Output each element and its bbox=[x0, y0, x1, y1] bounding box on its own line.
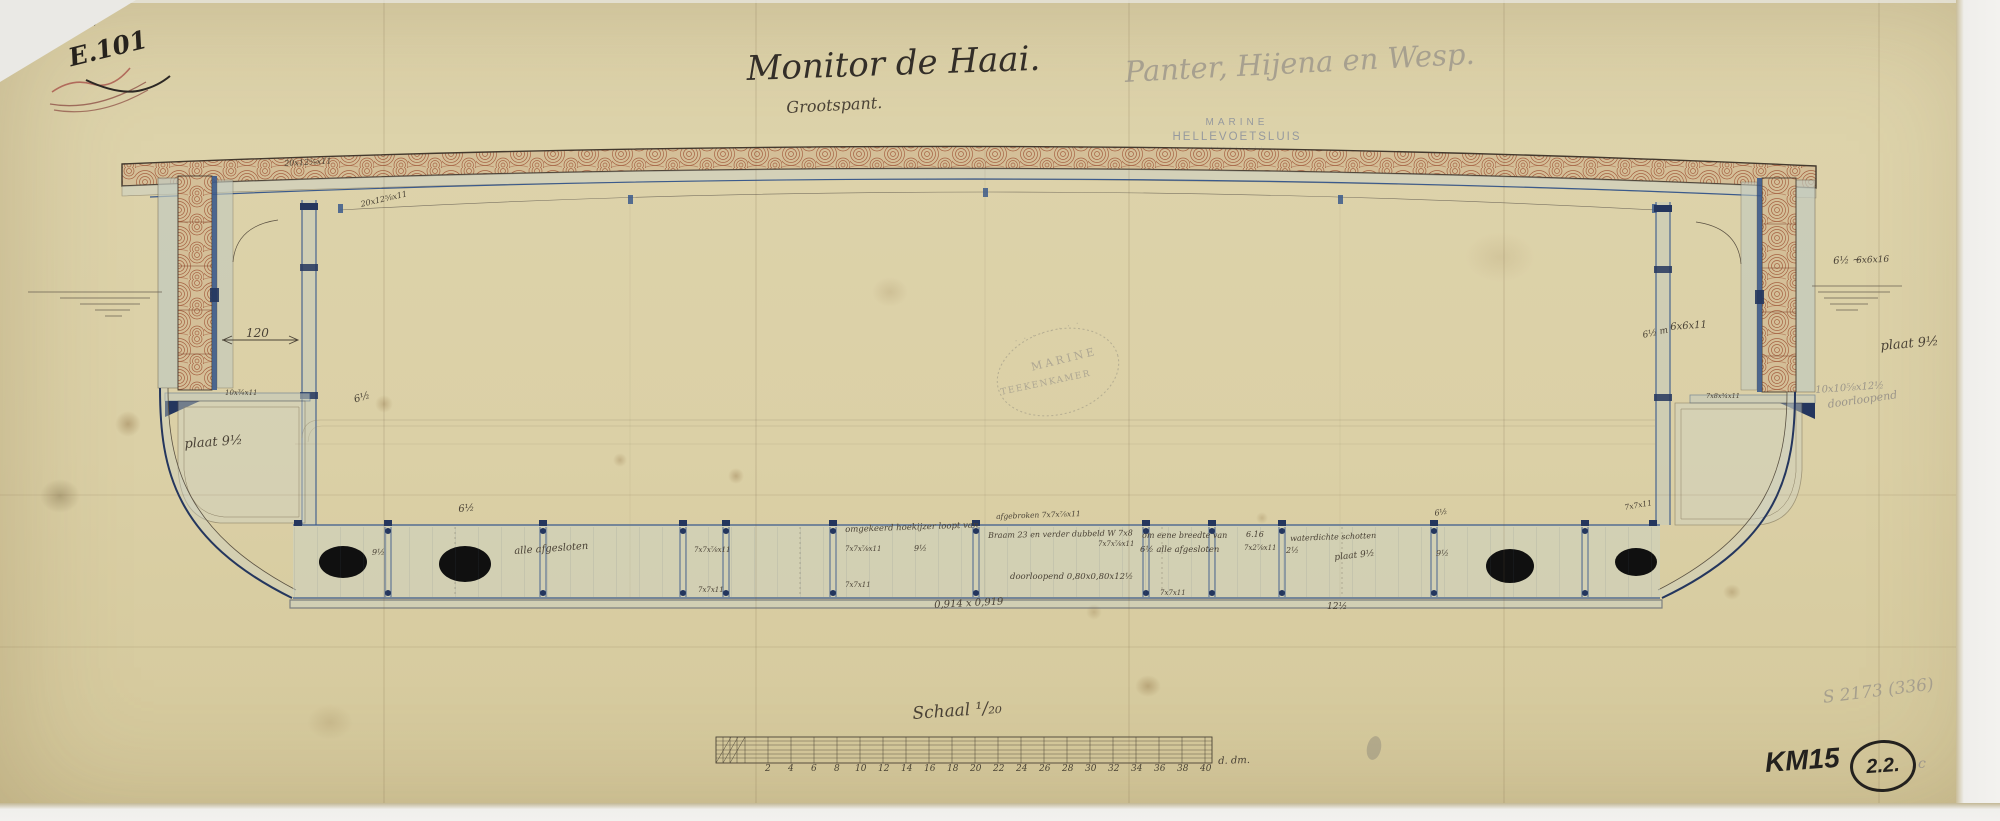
frac-2half: 2½ bbox=[1286, 547, 1299, 555]
dimension-120: 120 bbox=[246, 327, 269, 339]
scale-number: 24 bbox=[1016, 765, 1027, 774]
dim-c: 7x7x⅞x11 bbox=[845, 546, 881, 553]
collection-mark-km15: KM15 bbox=[1764, 744, 1840, 777]
fold-crease bbox=[1503, 0, 1505, 821]
scale-number: 26 bbox=[1039, 765, 1050, 774]
note-alle-afgesloten-b: 6½ alle afgesloten bbox=[1140, 546, 1219, 555]
measure-12half: 12½ bbox=[1327, 603, 1347, 612]
scale-number: 30 bbox=[1085, 765, 1096, 774]
dim-b: 7x7x11 bbox=[698, 587, 724, 594]
fold-crease bbox=[755, 0, 757, 821]
scale-number: 38 bbox=[1177, 765, 1188, 774]
plate-label-left: plaat 9½ bbox=[184, 434, 243, 451]
ship-plan-scan: N° 387 E.101 Monitor de Haai. Grootspant… bbox=[0, 0, 2000, 821]
scale-number: 18 bbox=[947, 765, 958, 774]
scale-number: 2 bbox=[765, 765, 771, 774]
band-6half: 6½ bbox=[458, 504, 475, 515]
circle-suffix: c bbox=[1918, 757, 1926, 771]
fold-crease bbox=[383, 0, 385, 821]
dim-a: 7x7x⅞x11 bbox=[694, 547, 730, 554]
circled-mark-text: 2.2. bbox=[1866, 753, 1901, 778]
band-9half-c: 9½ bbox=[1436, 550, 1449, 558]
scan-right-edge bbox=[1956, 0, 2000, 821]
dim-d: 7x7x11 bbox=[845, 582, 871, 589]
scale-number: 32 bbox=[1108, 765, 1119, 774]
scan-top-edge bbox=[120, 0, 2000, 3]
dim-g: 7x2⅞x11 bbox=[1244, 545, 1277, 552]
scale-number: 10 bbox=[855, 765, 866, 774]
scale-number: 40 bbox=[1200, 765, 1211, 774]
scale-number: 16 bbox=[924, 765, 935, 774]
fold-crease bbox=[0, 646, 2000, 648]
drawing-title: Monitor de Haai. bbox=[746, 42, 1041, 86]
shelf-left-dimension: 10x¾x11 bbox=[225, 390, 258, 397]
scale-number: 4 bbox=[788, 765, 794, 774]
right-6x6x16: 6x6x16 bbox=[1856, 256, 1889, 266]
marine-stamp-line3: · · · · · · · · · bbox=[1134, 144, 1340, 153]
scale-number: 6 bbox=[811, 765, 817, 774]
mark-616: 6.16 bbox=[1246, 531, 1264, 539]
dim-f: 7x7x11 bbox=[1160, 590, 1186, 597]
scale-number: 20 bbox=[970, 765, 981, 774]
band-9half-b: 9½ bbox=[914, 545, 927, 553]
scan-bottom-edge bbox=[0, 803, 2000, 821]
shelf-right-dimension: 7x8x¾x11 bbox=[1706, 393, 1740, 400]
dim-e: 7x7x⅞x11 bbox=[1098, 541, 1134, 548]
marine-stamp: MARINE HELLEVOETSLUIS · · · · · · · · · bbox=[1134, 117, 1340, 153]
scale-number: 28 bbox=[1062, 765, 1073, 774]
scale-number: 22 bbox=[993, 765, 1004, 774]
note-breedte: om eene breedte van bbox=[1142, 532, 1227, 540]
note-doorloopend-mid: doorloopend 0,80x0,80x12½ bbox=[1010, 573, 1133, 582]
marine-stamp-line2: HELLEVOETSLUIS bbox=[1134, 130, 1340, 144]
scale-number: 36 bbox=[1154, 765, 1165, 774]
scale-number: 12 bbox=[878, 765, 889, 774]
band-9half-a: 9½ bbox=[372, 549, 385, 557]
scale-unit-suffix: d. dm. bbox=[1218, 756, 1250, 767]
scale-number: 14 bbox=[901, 765, 912, 774]
marine-stamp-line1: MARINE bbox=[1134, 117, 1340, 130]
fold-crease bbox=[1128, 0, 1130, 821]
scale-number: 8 bbox=[834, 765, 840, 774]
fold-crease bbox=[0, 494, 2000, 496]
scale-number: 34 bbox=[1131, 765, 1142, 774]
